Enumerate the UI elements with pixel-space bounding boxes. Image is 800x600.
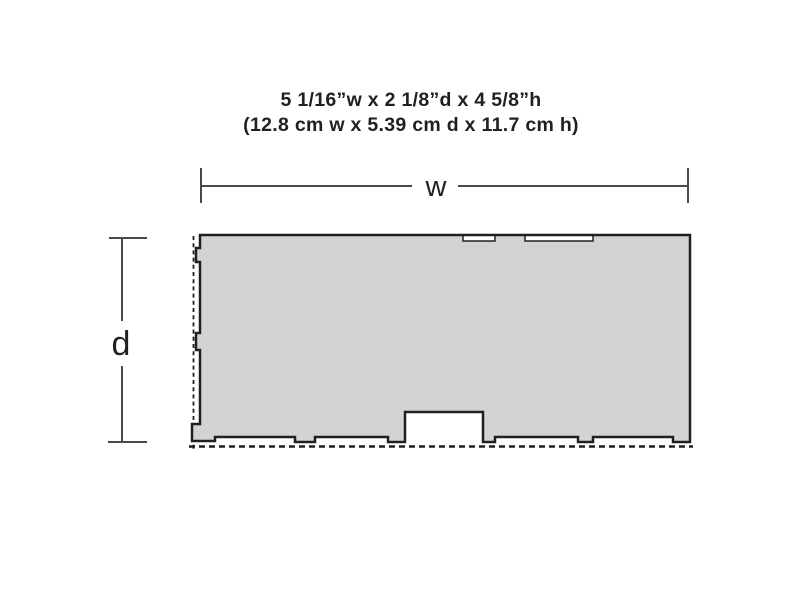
depth-dimension-line: d xyxy=(108,238,147,442)
footprint-shape xyxy=(189,235,693,450)
top-edge-slot-small xyxy=(463,236,495,242)
depth-label: d xyxy=(112,325,131,363)
width-label: w xyxy=(425,171,448,203)
width-dimension-line: w xyxy=(201,168,688,203)
footprint-outline xyxy=(192,235,690,442)
top-edge-slot-large xyxy=(525,236,593,242)
footprint-diagram: 5 1/16”w x 2 1/8”d x 4 5/8”h (12.8 cm w … xyxy=(0,0,800,600)
diagram-graphic: w d xyxy=(0,0,800,600)
